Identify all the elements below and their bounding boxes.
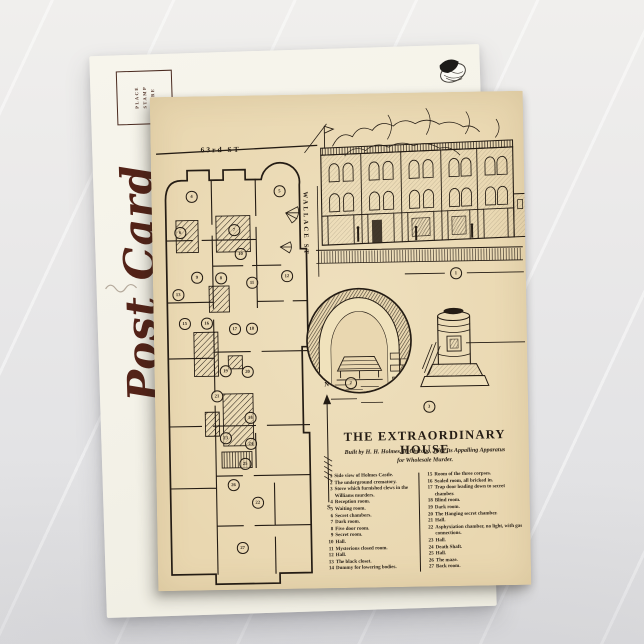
plan-marker-3: 3	[423, 401, 435, 413]
plan-marker-7: 7	[228, 224, 240, 236]
plan-marker-8: 8	[215, 272, 227, 284]
plan-marker-27: 27	[237, 542, 249, 554]
plan-marker-21: 21	[211, 390, 223, 402]
plan-marker-2: 2	[345, 377, 357, 389]
plan-marker-23: 23	[220, 432, 232, 444]
plan-marker-18: 18	[246, 323, 258, 335]
plan-marker-6: 6	[174, 227, 186, 239]
product-photo-background: PLACE STAMP HERE Post Card	[0, 0, 644, 644]
plan-marker-1: 1	[450, 267, 462, 279]
squiggle-mark	[104, 283, 138, 294]
plan-marker-10: 10	[235, 248, 247, 260]
plan-marker-17: 17	[229, 323, 241, 335]
plan-marker-4: 4	[186, 191, 198, 203]
plan-marker-19: 19	[220, 365, 232, 377]
building-illustration	[314, 107, 531, 264]
stove-illustration	[419, 307, 488, 386]
stamp-line-place: PLACE	[133, 86, 142, 109]
plan-marker-24: 24	[245, 438, 257, 450]
stamp-line-stamp: STAMP	[140, 86, 149, 109]
street-label-63rd: 63rd ST	[179, 144, 263, 154]
plan-marker-9: 9	[191, 272, 203, 284]
plan-marker-11: 11	[246, 277, 258, 289]
plan-marker-25: 25	[239, 458, 251, 470]
plan-marker-26: 26	[228, 479, 240, 491]
legend-column-left: 1Side view of Holmes Castle.2The undergr…	[324, 473, 420, 574]
plan-marker-13: 13	[172, 289, 184, 301]
compass-north-label: N	[320, 381, 334, 388]
plan-marker-20: 20	[242, 366, 254, 378]
room-legend: 1Side view of Holmes Castle.2The undergr…	[324, 471, 530, 573]
plan-marker-5: 5	[274, 185, 286, 197]
street-label-wallace: WALLACE ST	[301, 192, 309, 257]
plan-marker-16: 16	[201, 317, 213, 329]
plan-marker-14: 14	[244, 412, 256, 424]
plan-marker-22: 22	[252, 497, 264, 509]
legend-column-right: 15Room of the three corpses.16Sealed roo…	[418, 471, 524, 572]
plan-marker-15: 15	[179, 318, 191, 330]
plan-marker-12: 12	[281, 270, 293, 282]
postcard-front: 63rd ST WALLACE ST N S THE EXTRAORDINARY…	[150, 91, 532, 591]
